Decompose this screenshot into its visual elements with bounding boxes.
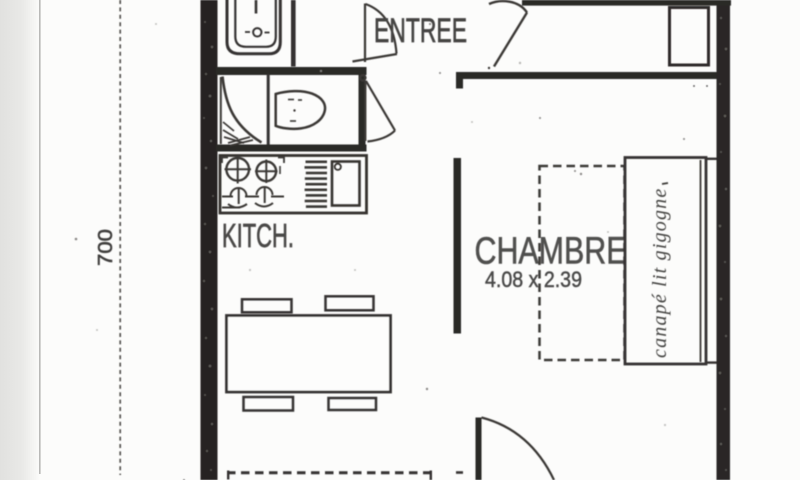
svg-text:4.08 x 2.39: 4.08 x 2.39 bbox=[485, 267, 582, 292]
svg-text:ENTREE: ENTREE bbox=[374, 12, 467, 50]
svg-text:canapé lit gigogne: canapé lit gigogne bbox=[649, 188, 671, 358]
svg-text:KITCH.: KITCH. bbox=[222, 217, 294, 254]
svg-text:700: 700 bbox=[94, 229, 117, 266]
